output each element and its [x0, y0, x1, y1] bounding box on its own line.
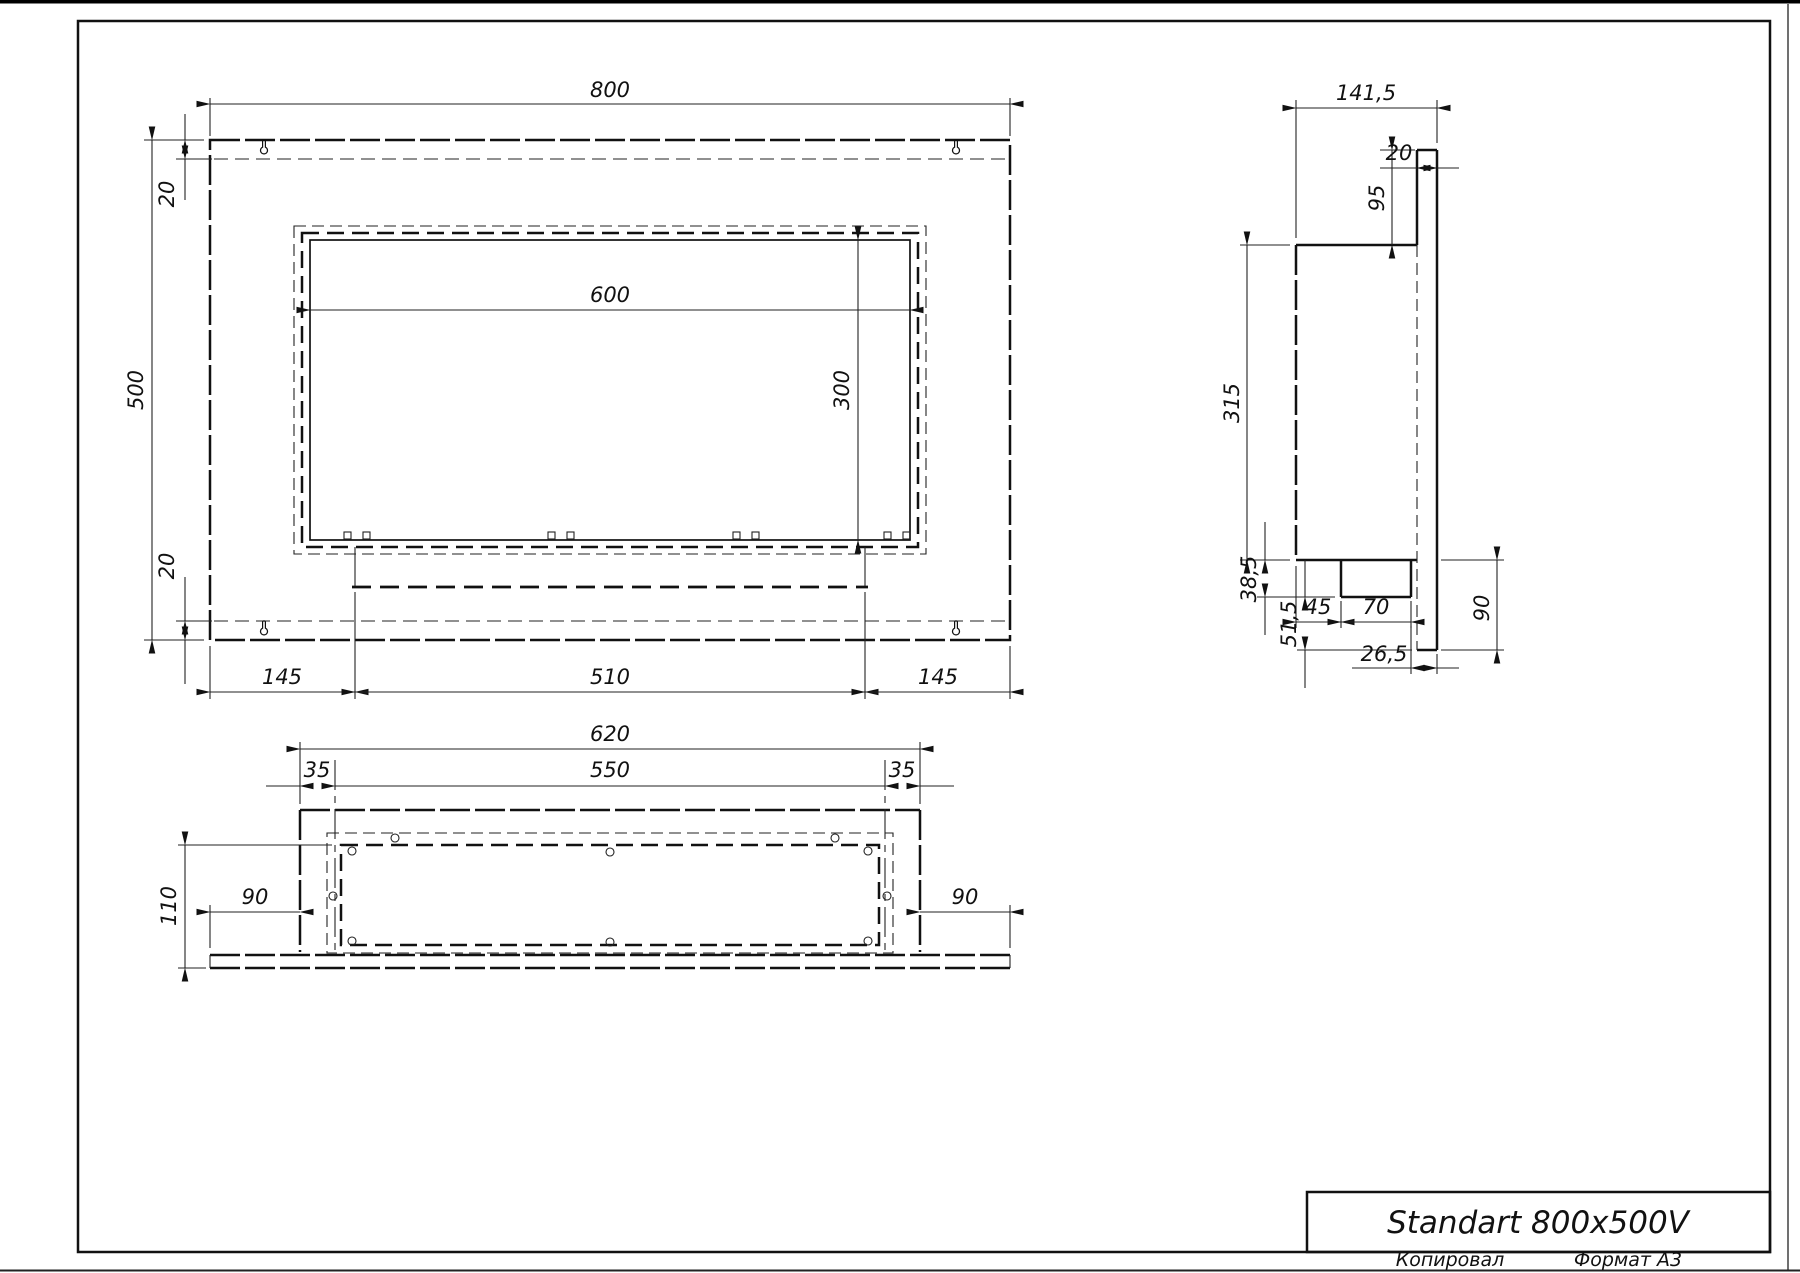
footer-format-label: Формат А3 [1574, 1249, 1682, 1271]
dim-side-plate-thickness: 20 [1386, 141, 1413, 165]
keyhole-icon [953, 621, 960, 635]
dim-side-body-height: 315 [1220, 383, 1244, 423]
sheet-edges [0, 0, 1800, 1271]
bottom-view: 620 35 550 35 90 90 110 [157, 722, 1010, 968]
dim-bottom-inner-width: 550 [590, 758, 630, 782]
dim-side-tray-drop: 38,5 [1237, 556, 1261, 603]
title-text: Standart 800x500V [1387, 1205, 1692, 1241]
dim-front-height: 500 [124, 370, 148, 410]
dim-side-tray-inset: 45 [1305, 595, 1332, 619]
dim-front-bottom-mid: 510 [590, 665, 630, 689]
dim-front-bottom-left: 145 [262, 665, 302, 689]
dim-side-depth: 141,5 [1336, 81, 1396, 105]
keyhole-icon [261, 621, 268, 635]
dim-front-opening-height: 300 [830, 370, 854, 410]
technical-drawing: 800 500 20 20 600 300 145 510 145 [0, 0, 1800, 1273]
dim-bottom-depth: 110 [157, 886, 181, 926]
dim-side-bottom-inset: 26,5 [1361, 642, 1408, 666]
front-view: 800 500 20 20 600 300 145 510 145 [124, 78, 1010, 699]
dim-front-width: 800 [590, 78, 630, 102]
dim-front-margin-bottom: 20 [155, 553, 179, 580]
footer-copied-label: Копировал [1396, 1249, 1505, 1271]
dim-side-tray-width: 70 [1363, 595, 1390, 619]
dim-side-top-inset: 95 [1365, 185, 1389, 212]
sheet-border [78, 21, 1770, 1252]
dim-bottom-inset-left: 35 [304, 758, 331, 782]
dim-bottom-overhang-right: 90 [952, 885, 979, 909]
dim-bottom-inset-right: 35 [889, 758, 916, 782]
dim-side-lower-total: 90 [1470, 595, 1494, 622]
drawing-sheet: 800 500 20 20 600 300 145 510 145 [0, 0, 1800, 1273]
side-view: 141,5 20 95 315 38,5 51,5 45 70 26,5 90 [1220, 81, 1504, 688]
title-block: Standart 800x500V [1307, 1192, 1770, 1252]
dim-front-margin-top: 20 [155, 181, 179, 208]
dim-bottom-width: 620 [590, 722, 630, 746]
dim-side-lower-gap: 51,5 [1277, 601, 1301, 648]
keyhole-icon [261, 140, 268, 154]
keyhole-icon [953, 140, 960, 154]
dim-bottom-overhang-left: 90 [242, 885, 269, 909]
dim-front-opening-width: 600 [590, 283, 630, 307]
dim-front-bottom-right: 145 [918, 665, 958, 689]
